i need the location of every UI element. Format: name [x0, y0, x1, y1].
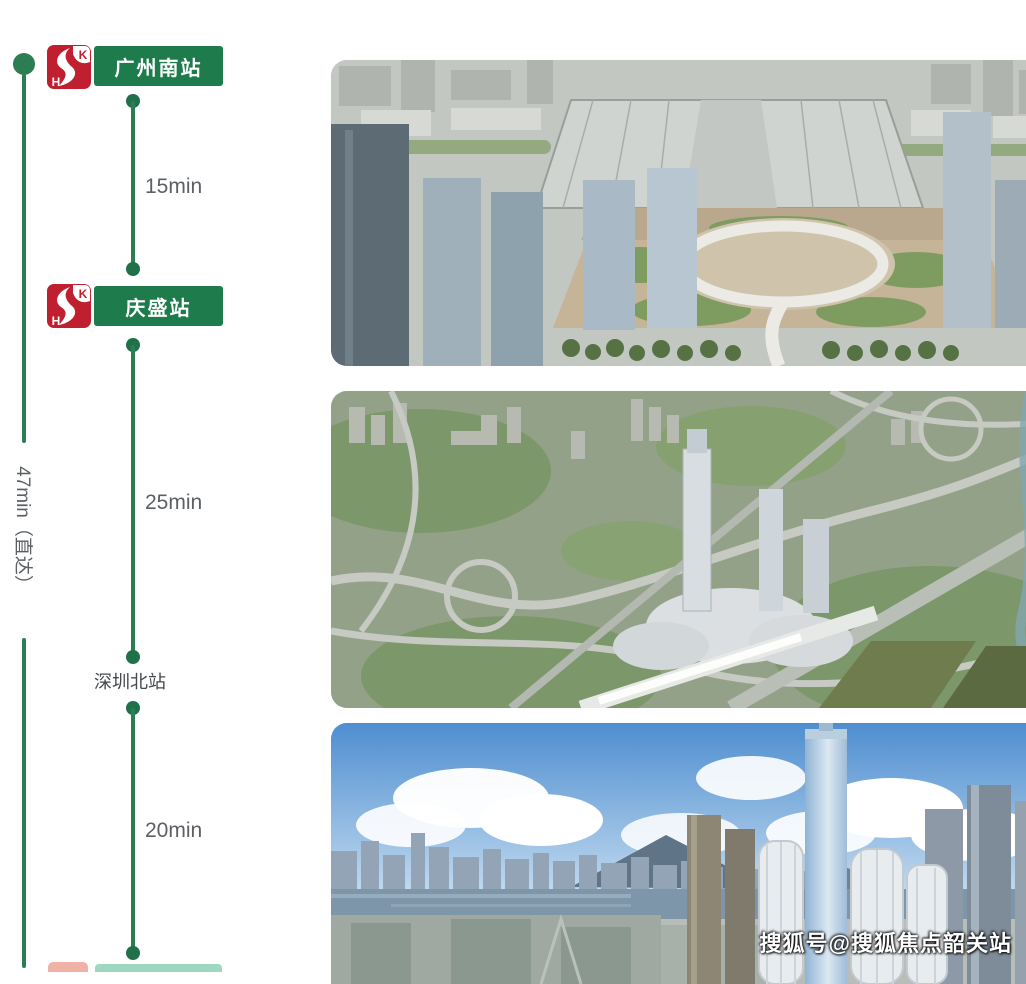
- route-node-dot: [126, 262, 140, 276]
- dark-tower: [331, 124, 409, 366]
- partial-station-badge: [48, 962, 88, 972]
- segment-duration-1: 15min: [145, 174, 225, 200]
- shkp-logo-badge: K H: [47, 45, 91, 89]
- total-duration-label: 47min（直达）: [10, 460, 34, 600]
- segment-duration-2: 25min: [145, 490, 225, 516]
- station-label-guangzhou-south: 广州南站: [94, 46, 223, 86]
- segment-line-1: [131, 101, 135, 269]
- photo-station-district-aerial: [331, 391, 1026, 708]
- watermark: 搜狐号@搜狐焦点韶关站: [760, 930, 1012, 958]
- logo-letter-h: H: [52, 314, 61, 328]
- route-node-dot: [126, 946, 140, 960]
- shkp-logo-badge: K H: [47, 284, 91, 328]
- central-tower: [683, 449, 711, 611]
- segment-line-2: [131, 345, 135, 657]
- station-label-qingsheng: 庆盛站: [94, 286, 223, 326]
- route-node-dot: [126, 650, 140, 664]
- route-start-dot: [13, 53, 35, 75]
- shkp-logo-icon: K H: [47, 284, 91, 328]
- station-label-shenzhen-north: 深圳北站: [92, 671, 168, 693]
- segment-line-3: [131, 708, 135, 953]
- photo-2-illustration: [331, 391, 1026, 708]
- route-infographic: 47min（直达） K H 广州南站 15min K H 庆盛站 25min 深…: [0, 0, 1026, 968]
- logo-letter-h: H: [52, 75, 61, 89]
- photo-1-illustration: [331, 60, 1026, 366]
- logo-letter-k: K: [79, 287, 88, 301]
- total-route-line-upper: [22, 74, 26, 443]
- segment-duration-3: 20min: [145, 818, 225, 844]
- logo-letter-k: K: [79, 48, 88, 62]
- partial-station-box: [95, 964, 222, 972]
- shkp-logo-icon: K H: [47, 45, 91, 89]
- total-route-line-lower: [22, 638, 26, 968]
- photo-qingsheng-station-aerial: [331, 60, 1026, 366]
